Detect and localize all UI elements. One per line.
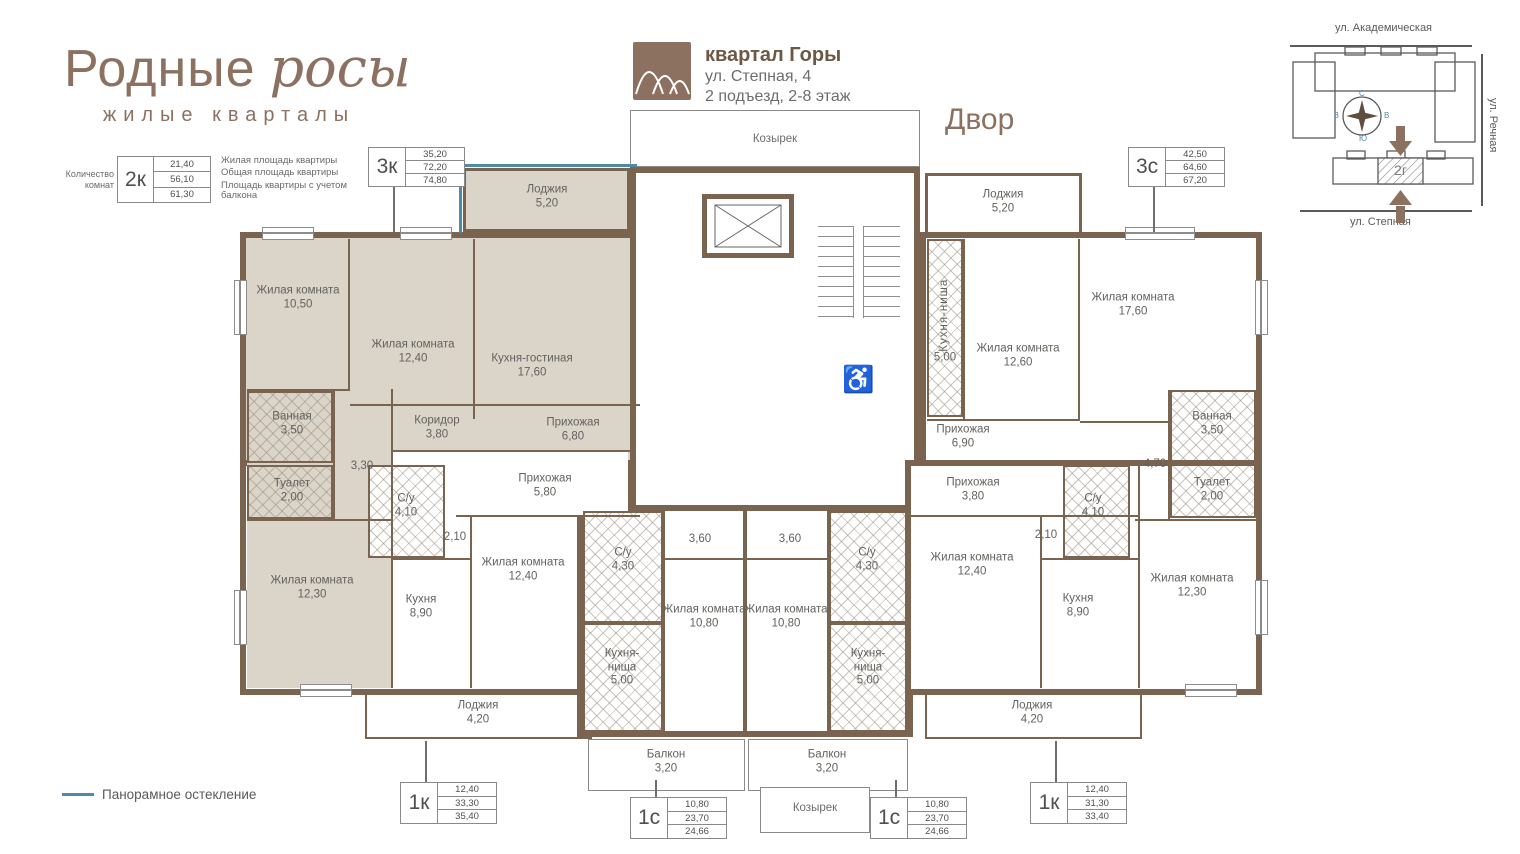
compass-east: В [1384, 111, 1389, 120]
room-label: Ванная3,50 [1192, 410, 1231, 437]
room-label: Прихожая5,80 [518, 472, 571, 499]
window [1255, 280, 1268, 335]
room-label: Прихожая3,80 [946, 476, 999, 503]
window [234, 280, 247, 335]
window [400, 227, 452, 240]
canopy-bottom-label: Козырек [793, 802, 837, 816]
logo-word-script: росы [270, 36, 411, 99]
minimap-buildings-graphic [1285, 20, 1503, 230]
room-label: С/у4,10 [395, 492, 417, 519]
apartment-tag-1k-right[interactable]: 1к 12,4031,3033,40 [1030, 782, 1127, 824]
room-label: Жилая комната10,80 [661, 603, 747, 630]
apartment-tag-1k-left[interactable]: 1к 12,4033,3035,40 [400, 782, 497, 824]
logo-word-regular: Родные [64, 40, 256, 98]
room-label: Жилая комната10,50 [255, 284, 341, 311]
room-label: Кухня-ниша5,00 [934, 279, 956, 366]
room-label: Кухня8,90 [406, 593, 437, 620]
room-label: С/у4,10 [1082, 492, 1104, 519]
room-label: Лоджия5,20 [983, 188, 1024, 215]
room-label: Туалет2,00 [1194, 476, 1230, 503]
legend-key-type: 2к [118, 157, 154, 202]
room-label: Жилая комната12,30 [1149, 572, 1235, 599]
room-label: Жилая комната12,40 [480, 556, 566, 583]
room-label: Туалет2,00 [274, 477, 310, 504]
entrance-floors-line: 2 подъезд, 2-8 этаж [705, 88, 850, 106]
legend-rooms-count-label: Количество комнат [58, 169, 114, 191]
glazing-legend-label: Панорамное остекление [102, 787, 256, 802]
site-minimap: ул. Академическая ул. Речная ул. Степная [1285, 20, 1503, 230]
room-label: Жилая комната12,40 [370, 338, 456, 365]
canopy-top-label: Козырек [753, 133, 797, 147]
room-label: Лоджия4,20 [1012, 699, 1053, 726]
room-label: Жилая комната10,80 [743, 603, 829, 630]
room-label: Кухня-гостиная17,60 [489, 352, 575, 379]
legend-key-value: 21,40 [154, 157, 210, 171]
staircase [818, 226, 900, 318]
room-label: С/у4,30 [612, 546, 634, 573]
quarter-mountains-icon [633, 42, 691, 100]
room-label: Жилая комната12,60 [975, 342, 1061, 369]
window [1185, 684, 1237, 697]
legend-key-box: 2к 21,40 56,10 61,30 [117, 156, 211, 203]
floor-plan-page: Родныеросы жилые кварталы Количество ком… [0, 0, 1520, 854]
room-label: Лоджия5,20 [527, 183, 568, 210]
room-label: Жилая комната12,30 [269, 574, 355, 601]
window [234, 590, 247, 645]
window [1125, 227, 1195, 240]
room-label: Балкон3,20 [808, 748, 847, 775]
room-label: 3,60 [689, 533, 711, 547]
glazing-legend-line [62, 793, 94, 796]
room-label: 2,10 [444, 531, 466, 545]
window [1255, 580, 1268, 635]
logo-subtitle: жилые кварталы [64, 104, 394, 127]
window [300, 684, 352, 697]
room-label: Жилая комната12,40 [929, 551, 1015, 578]
minimap-building-label: 2г [1378, 162, 1423, 178]
wheelchair-icon: ♿ [842, 364, 874, 395]
room-label: Ванная3,50 [272, 410, 311, 437]
room-label: Кухня-ниша5,00 [837, 648, 899, 689]
window [262, 227, 314, 240]
room-label: 3,60 [779, 533, 801, 547]
apartment-tag-1s-left[interactable]: 1с 10,8023,7024,66 [630, 797, 727, 839]
elevator-shaft [702, 194, 794, 258]
room-label: Прихожая6,90 [936, 423, 989, 450]
room-label: Коридор3,80 [414, 414, 459, 441]
room-label: Балкон3,20 [647, 748, 686, 775]
yard-label: Двор [945, 103, 1014, 137]
apartment-tag-1s-right[interactable]: 1с 10,8023,7024,66 [870, 797, 967, 839]
quarter-title: квартал Горы [705, 44, 841, 67]
legend-key-value: 56,10 [154, 171, 210, 186]
room-label: 4,70 [1144, 458, 1166, 472]
room-label: Кухня-ниша5,00 [591, 648, 653, 689]
room-label: 2,10 [1035, 529, 1057, 543]
room-label: С/у4,30 [856, 546, 878, 573]
room-label: Прихожая6,80 [546, 416, 599, 443]
compass-south: Ю [1359, 134, 1367, 143]
room-label: Кухня8,90 [1063, 592, 1094, 619]
logo: Родныеросы [64, 36, 411, 99]
compass-north: С [1359, 89, 1365, 98]
apartment-tag-3s[interactable]: 3с 42,5064,6067,20 [1128, 147, 1225, 187]
room-label: 3,30 [351, 460, 373, 474]
address-line: ул. Степная, 4 [705, 68, 811, 86]
room-label: Лоджия4,20 [458, 699, 499, 726]
compass-west: З [1334, 111, 1339, 120]
legend-key-labels: Жилая площадь квартиры Общая площадь ква… [221, 156, 391, 204]
legend-key-value: 61,30 [154, 187, 210, 202]
room-label: Жилая комната17,60 [1090, 291, 1176, 318]
